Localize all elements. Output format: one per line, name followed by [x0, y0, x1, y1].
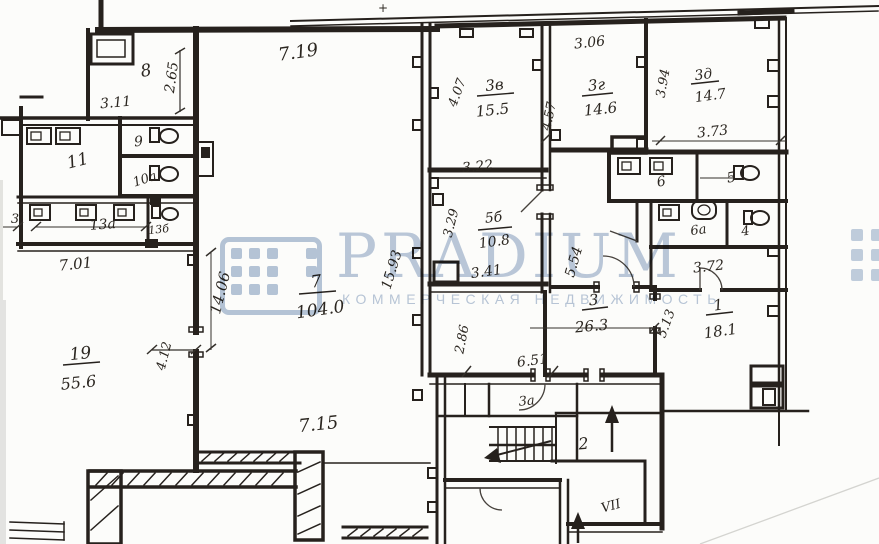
dim-label: 3.94	[654, 68, 674, 99]
sink-icon	[659, 205, 679, 220]
scan-artifacts	[700, 478, 879, 544]
room-7-label: 7	[310, 271, 324, 292]
room-3g-label: 3г	[587, 75, 606, 95]
room-13a-label: 13а	[89, 216, 116, 234]
entry-arrow-head	[571, 512, 585, 529]
dim-label: 2.86	[452, 324, 472, 356]
shaft-fill	[201, 147, 210, 158]
room-3d-label: 3д	[694, 66, 714, 84]
staircase	[484, 427, 556, 463]
sink-icon	[618, 158, 640, 174]
dim-label: 2.65	[162, 61, 182, 95]
section-vii-mark: VII	[600, 497, 624, 517]
dim-label: 3.22	[461, 157, 494, 176]
room-11-label: 11	[65, 149, 91, 174]
room-1-area: 18.1	[703, 320, 739, 342]
sink-icon	[30, 205, 50, 220]
toilet-icon	[152, 206, 178, 220]
sink-icon	[56, 128, 80, 144]
dim-label: 7.15	[297, 412, 339, 437]
plus-mark: +	[378, 1, 388, 15]
room-edge-label: 3	[11, 212, 19, 227]
dim-label: 5.13	[655, 308, 679, 340]
room-6a-label: 6а	[690, 222, 708, 239]
dim-label: 3.41	[470, 262, 503, 282]
toilet-icon	[734, 166, 759, 180]
dim-label: 3.11	[99, 94, 131, 113]
hatched-walls	[10, 452, 430, 544]
room-3v-area: 15.5	[475, 99, 510, 120]
duct-fill	[150, 197, 161, 205]
room-5b-label: 5б	[484, 209, 503, 227]
dim-label: 3.06	[573, 33, 606, 52]
dim-label: 3.72	[692, 257, 725, 276]
room-3a-label: 3а	[518, 393, 535, 409]
floor-plan-drawing: 7.19 + 3.06 8 2.65 3.11 3в 15.5 4.07 3г …	[0, 0, 879, 544]
room-19-area: 55.6	[60, 371, 97, 394]
dim-label: 7.19	[277, 39, 320, 65]
dim-label: 3.29	[441, 207, 463, 239]
floor-plan-scan: 7.19 + 3.06 8 2.65 3.11 3в 15.5 4.07 3г …	[0, 0, 879, 544]
dim-label: 14.06	[206, 269, 234, 315]
dim-label: 4.07	[445, 76, 470, 110]
dim-label: 5.54	[562, 245, 586, 279]
sink-icon	[650, 158, 672, 174]
sink-icon	[114, 205, 134, 220]
dim-label: 7.01	[58, 253, 93, 274]
room-3g-area: 14.6	[583, 98, 619, 119]
scan-edge-artifact	[0, 180, 3, 300]
room-13b-label: 13б	[148, 222, 170, 237]
room-6-label: 6	[656, 173, 668, 190]
room-19-label: 19	[69, 343, 93, 365]
room-8-label: 8	[139, 60, 153, 82]
toilet-icon	[150, 128, 178, 143]
room-10a-label: 10а	[131, 169, 159, 191]
room-7-area: 104.0	[295, 297, 346, 324]
room-4-label: 4	[739, 224, 750, 240]
dim-label: 15.93	[379, 248, 406, 291]
room-3-area: 26.3	[573, 316, 609, 337]
room-3v-label: 3в	[484, 75, 504, 95]
room-3-label: 3	[588, 291, 599, 310]
room-9-label: 9	[134, 134, 144, 151]
room-3d-area: 14.7	[694, 86, 727, 106]
room-2-label: 2	[577, 434, 590, 454]
sink-icon	[27, 128, 51, 144]
scan-edge-artifact	[0, 300, 6, 544]
room-1-label: 1	[712, 295, 724, 314]
room-5-label: 5	[726, 169, 738, 186]
dim-label: 3.73	[696, 122, 729, 141]
room-5b-area: 10.8	[478, 232, 511, 252]
sink-icon	[692, 201, 716, 219]
threshold-fill	[145, 239, 158, 248]
labels: 7.19 + 3.06 8 2.65 3.11 3в 15.5 4.07 3г …	[11, 1, 751, 516]
